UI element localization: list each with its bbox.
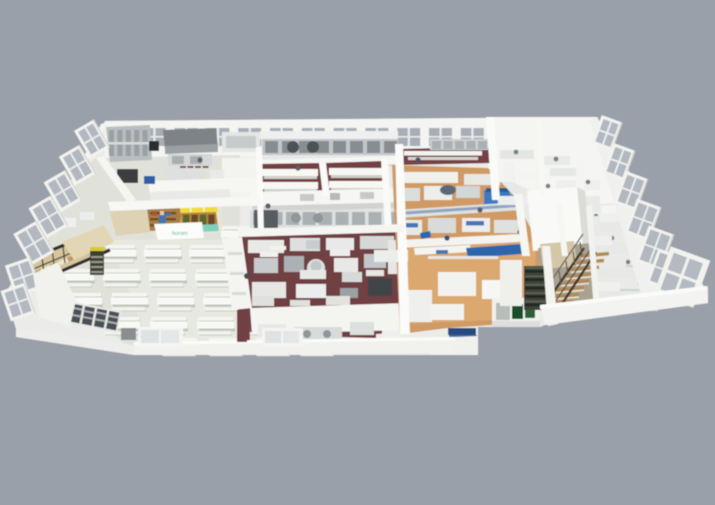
svg-text:hurom: hurom <box>172 231 188 237</box>
